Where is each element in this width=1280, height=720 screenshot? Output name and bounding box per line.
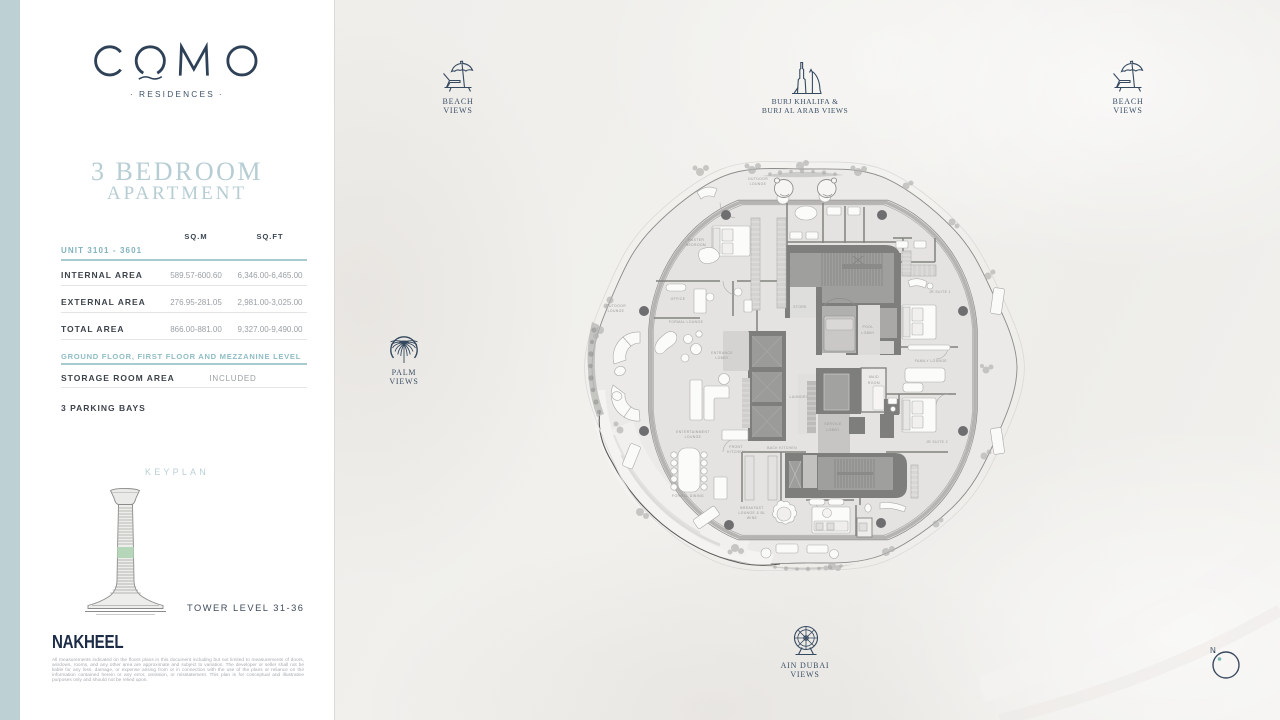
svg-text:BREAKFAST: BREAKFAST (740, 506, 764, 510)
svg-text:FAMILY LOUNGE: FAMILY LOUNGE (915, 359, 948, 363)
svg-text:ENTRANCE: ENTRANCE (711, 351, 733, 355)
svg-text:MAID: MAID (869, 375, 879, 379)
svg-text:SERVICE: SERVICE (824, 422, 842, 426)
svg-text:WINE: WINE (747, 516, 758, 520)
svg-text:BEDROOM: BEDROOM (686, 243, 706, 247)
svg-text:LOBBY: LOBBY (715, 356, 729, 360)
svg-text:OFFICE: OFFICE (671, 297, 686, 301)
svg-text:LAUNDRY: LAUNDRY (790, 395, 809, 399)
svg-text:JR SUITE 1: JR SUITE 1 (929, 290, 951, 294)
svg-text:LOUNGE: LOUNGE (608, 309, 625, 313)
svg-text:LOUNGE: LOUNGE (750, 182, 767, 186)
svg-text:FRONT: FRONT (729, 445, 743, 449)
svg-text:LOUNGE: LOUNGE (685, 435, 702, 439)
svg-text:BACK KITCHEN: BACK KITCHEN (767, 446, 797, 450)
svg-text:FORMAL LOUNGE: FORMAL LOUNGE (669, 320, 704, 324)
svg-text:FORMAL DINING: FORMAL DINING (672, 494, 704, 498)
svg-text:STORE: STORE (793, 305, 807, 309)
svg-text:LOBBY: LOBBY (861, 331, 875, 335)
svg-text:POOL: POOL (862, 325, 873, 329)
svg-text:OUTDOOR: OUTDOOR (606, 304, 626, 308)
svg-text:JR SUITE 2: JR SUITE 2 (926, 440, 948, 444)
svg-text:LOBBY: LOBBY (826, 428, 840, 432)
svg-text:LOUNGE & BL: LOUNGE & BL (738, 511, 765, 515)
svg-text:ENTERTAINMENT: ENTERTAINMENT (676, 430, 710, 434)
svg-text:KITCHEN: KITCHEN (727, 450, 745, 454)
svg-text:ROOM: ROOM (868, 381, 880, 385)
svg-text:MASTER: MASTER (688, 238, 705, 242)
svg-text:OUTDOOR: OUTDOOR (748, 177, 768, 181)
